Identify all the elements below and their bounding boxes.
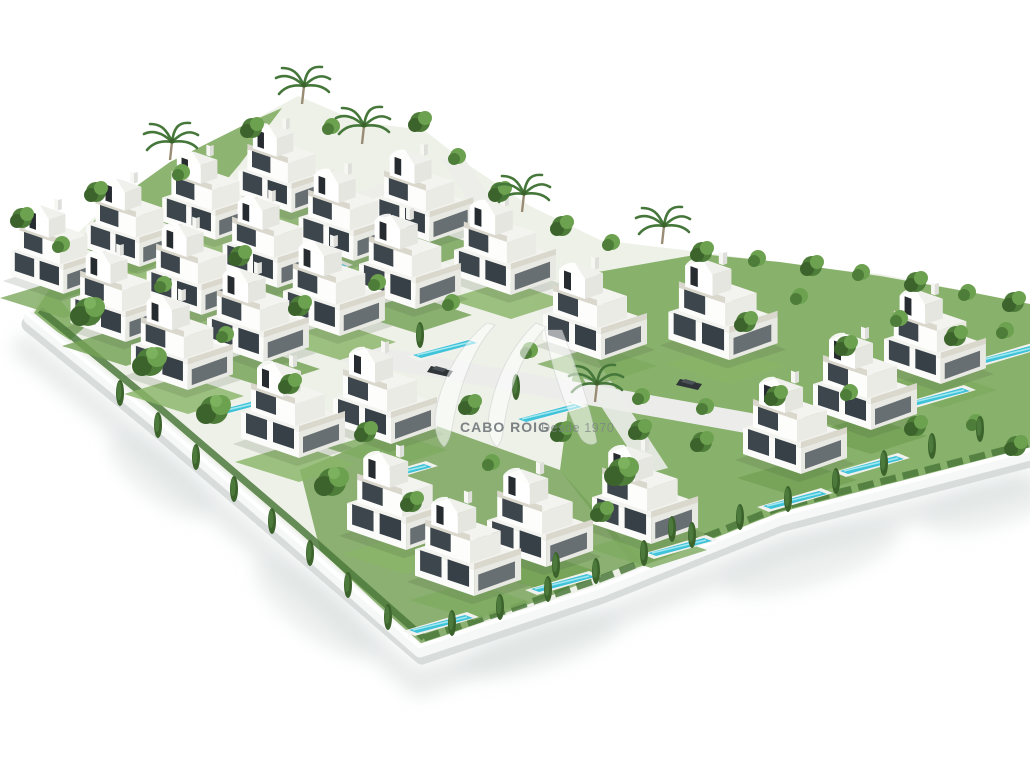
cypress-tree	[384, 604, 392, 630]
cypress-tree	[832, 468, 840, 494]
cypress-tree	[688, 522, 696, 548]
cypress-tree	[976, 416, 984, 442]
render-canvas: CABO ROIG Desde 1970	[0, 0, 1030, 765]
cypress-tree	[496, 594, 504, 620]
cypress-tree	[668, 516, 676, 542]
render-scene: CABO ROIG Desde 1970	[0, 0, 1030, 765]
palm-tree	[276, 67, 330, 104]
cypress-tree	[880, 450, 888, 476]
cypress-tree	[928, 433, 936, 459]
cypress-tree	[448, 610, 456, 636]
cypress-tree	[592, 558, 600, 584]
cypress-tree	[736, 504, 744, 530]
watermark-brand: CABO ROIG	[460, 419, 550, 435]
cypress-tree	[154, 412, 162, 438]
watermark-tagline: Desde 1970	[541, 421, 614, 435]
cypress-tree	[552, 552, 560, 578]
cypress-tree	[544, 576, 552, 602]
cypress-tree	[306, 540, 314, 566]
cypress-tree	[344, 572, 352, 598]
tree	[408, 111, 432, 132]
cypress-tree	[230, 476, 238, 502]
cypress-tree	[416, 322, 424, 348]
cypress-tree	[116, 380, 124, 406]
cypress-tree	[784, 486, 792, 512]
palm-tree	[636, 207, 690, 244]
cypress-tree	[640, 540, 648, 566]
cypress-tree	[268, 508, 276, 534]
cypress-tree	[192, 444, 200, 470]
